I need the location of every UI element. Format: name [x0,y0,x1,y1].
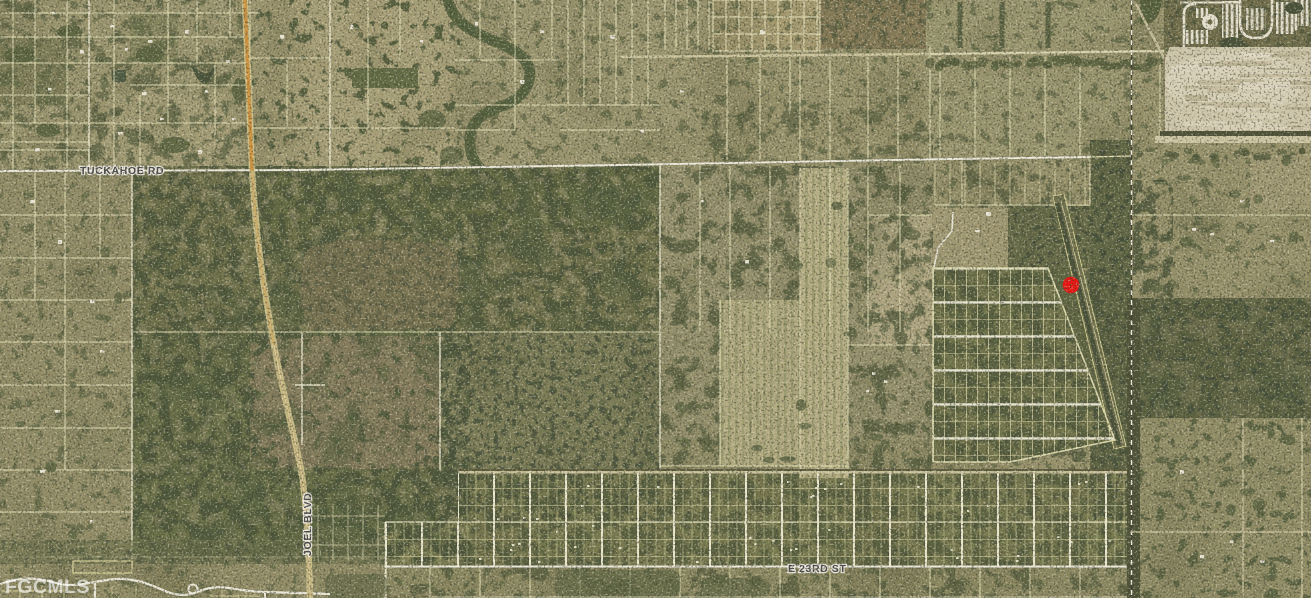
svg-text:FGCMLS: FGCMLS [5,576,90,598]
